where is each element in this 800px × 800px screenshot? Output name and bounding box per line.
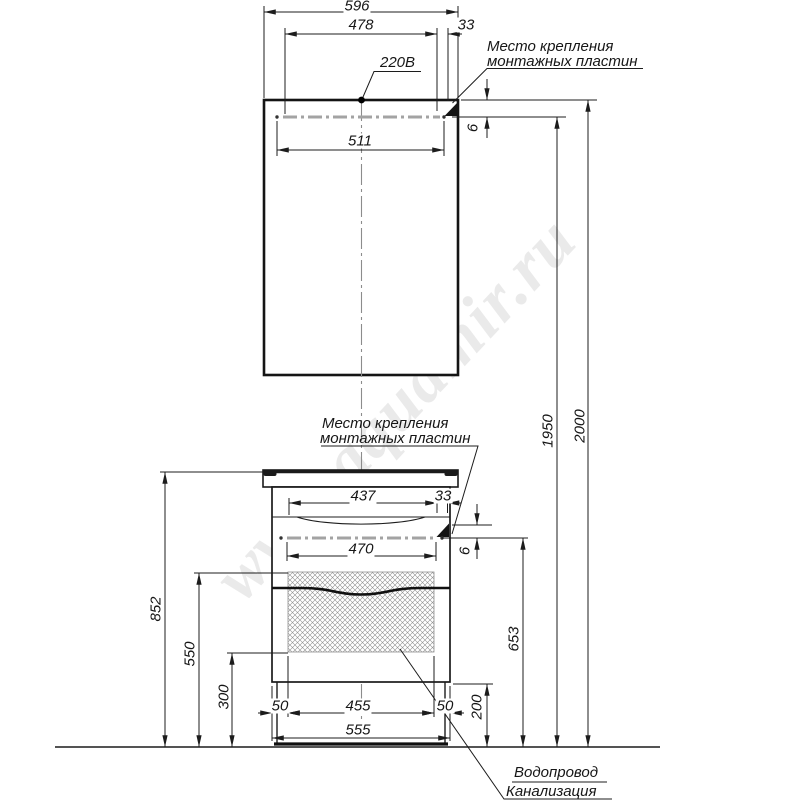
- utilities-label-line2: Канализация: [506, 784, 597, 799]
- dim-total-height: 2000: [573, 408, 588, 443]
- dim-mirror-gap: 6: [466, 123, 481, 133]
- dim-mirror-plate: 511: [347, 134, 373, 149]
- vanity-countertop: [263, 470, 458, 487]
- mount-top-leader: [453, 69, 644, 104]
- dim-mirror-mount-span: 478: [347, 18, 374, 33]
- dim-inset-left: 50: [271, 699, 290, 714]
- dim-vanity-gap: 6: [458, 546, 473, 556]
- outlet-label: 220В: [380, 55, 415, 70]
- technical-drawing: www.aquamir.ru: [0, 0, 800, 800]
- dim-plate-height: 653: [507, 625, 522, 652]
- drawing-canvas: [0, 0, 800, 800]
- drawing-geometry: [55, 6, 660, 799]
- mount-label-top-line1: Место крепления: [487, 39, 613, 54]
- mount-label-bottom-line2: монтажных пластин: [320, 431, 470, 446]
- mount-label-bottom-line1: Место крепления: [322, 416, 448, 431]
- dim-mirror-mount-edge: 33: [457, 18, 476, 33]
- dim-vanity-height: 852: [149, 595, 164, 622]
- dim-vanity-plate: 470: [347, 542, 374, 557]
- utilities-hatch-area: [288, 572, 434, 652]
- outlet-leader: [363, 72, 421, 98]
- utilities-label-line1: Водопровод: [514, 765, 598, 780]
- dim-vanity-mount-edge: 33: [434, 489, 453, 504]
- dim-cabinet-width: 555: [344, 723, 371, 738]
- dim-mount-height: 1950: [541, 413, 556, 448]
- dim-mirror-width: 596: [343, 0, 370, 14]
- dim-vanity-mount-span: 437: [349, 489, 376, 504]
- dim-hatch-bottom: 300: [217, 683, 232, 710]
- outlet-dot: [358, 97, 365, 104]
- dim-leg-span: 455: [344, 699, 371, 714]
- mount-label-top-line2: монтажных пластин: [487, 54, 637, 69]
- dim-inset-right: 50: [436, 699, 455, 714]
- dim-clearance: 200: [470, 693, 485, 720]
- dim-hatch-top: 550: [183, 640, 198, 667]
